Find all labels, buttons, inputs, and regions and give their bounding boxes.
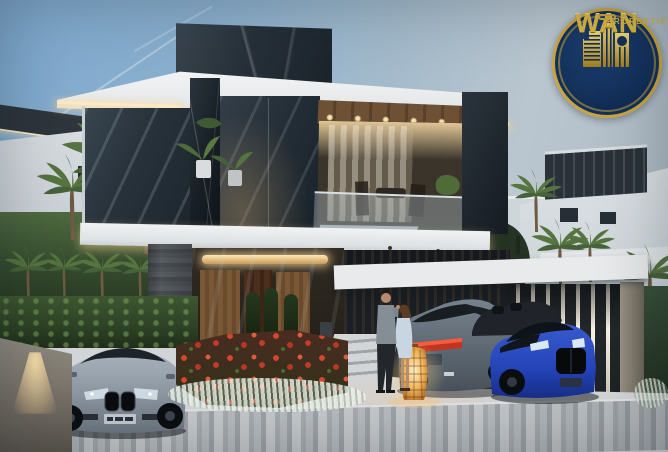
wan-properties-logo-badge: WAN PROPERTIES — [552, 8, 662, 118]
brand-tagline: PROPERTIES — [598, 14, 616, 20]
villa-exterior-render: WAN PROPERTIES — [0, 0, 668, 452]
